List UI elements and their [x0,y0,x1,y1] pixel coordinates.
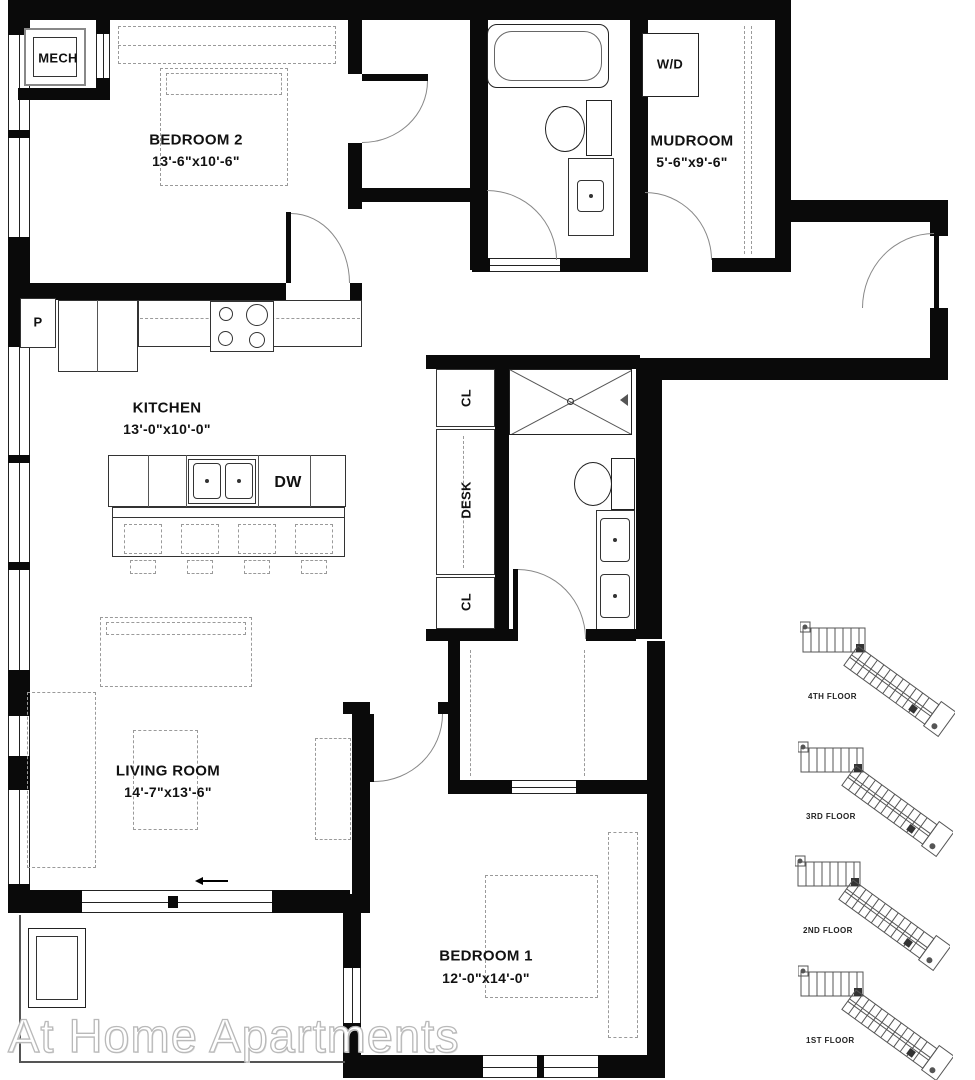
pantry-label: P [34,315,43,330]
kitchen-dims: 13'-0"x10'-0" [123,421,211,437]
stool-dashed [181,524,219,554]
floor-key-2: 2ND FLOOR [795,854,955,976]
bathtub-inner [494,31,602,81]
door-swing [291,213,350,283]
door-swing [645,192,712,260]
wall [788,200,948,222]
refrigerator [58,300,138,372]
wall [472,258,490,272]
dresser-dashed [608,832,638,1038]
sink [600,574,630,618]
mudroom-closet-dashed [744,26,745,254]
wall [658,358,948,380]
entry-arrow-line [202,880,228,882]
island-seating-edge [112,517,345,518]
closet-slider [512,780,576,794]
watermark: At Home Apartments [8,1008,460,1063]
coffee-table-dashed [133,730,198,830]
toilet [545,106,585,152]
sliding-door-stile [168,896,178,908]
refrigerator-divider [97,300,98,372]
entry-arrow-icon [195,877,203,885]
floor-key-3: 3RD FLOOR [798,740,958,862]
floor-key-4: 4TH FLOOR [800,620,960,742]
floor-key-label: 4TH FLOOR [808,692,857,701]
shower [509,369,632,435]
wall [426,355,640,369]
mech-label: MECH [38,51,77,66]
island-divider [148,455,149,507]
door-swing [362,81,428,143]
stool-dashed [238,524,276,554]
island-divider [186,455,187,507]
window [8,347,30,670]
desk-label: DESK [459,481,474,518]
shower-head-icon [620,394,628,406]
floor-key-shape [800,620,960,745]
closet-rod-dashed [470,650,471,776]
wall [18,0,790,20]
wall [647,641,665,1078]
window-mullion [537,1055,544,1078]
sink [600,518,630,562]
wall [775,0,791,272]
wall [352,714,370,894]
wall [438,702,460,714]
closet-rod-dashed [118,45,336,46]
burner [219,307,233,321]
stool-dashed [130,560,156,574]
living-room-label: LIVING ROOM [116,763,220,780]
floor-key-label: 2ND FLOOR [803,926,853,935]
toilet-tank [586,100,612,156]
window-mullion [8,130,30,138]
door-swing [374,714,443,782]
pocket-door [490,258,560,272]
chair-dashed [27,692,96,868]
sofa-back-dashed [106,622,246,635]
floor-key-shape [798,740,958,865]
dishwasher-label: DW [274,474,301,492]
washer-dryer-label: W/D [657,57,683,72]
floor-plan: MECH BEDROOM 2 13'-6"x10'-6" W/D MUDROOM… [0,0,975,1080]
pillow-dashed [166,73,282,95]
mudroom-closet-dashed [751,26,752,254]
sink [225,463,253,499]
bedroom2-label: BEDROOM 2 [149,132,243,149]
burner [246,304,268,326]
wall [560,258,632,272]
door-swing [518,569,586,639]
bedroom1-label: BEDROOM 1 [439,948,533,965]
island-divider [310,455,311,507]
bedroom2-dims: 13'-6"x10'-6" [152,153,240,169]
bedroom1-dims: 12'-0"x14'-0" [442,970,530,986]
mudroom-label: MUDROOM [651,133,734,150]
burner [249,332,265,348]
console-dashed [315,738,351,840]
burner [218,331,233,346]
wall [448,780,512,794]
wall [930,308,948,358]
closet-upper-label: CL [459,389,474,407]
stool-dashed [301,560,327,574]
floor-key-1: 1ST FLOOR [798,964,958,1080]
wall [18,88,110,100]
stool-dashed [124,524,162,554]
wall [586,629,636,641]
wall [712,258,791,272]
door-leaf [362,74,428,81]
window-mullion [8,562,30,570]
stool-dashed [295,524,333,554]
sink [193,463,221,499]
wall [343,913,361,968]
wall [636,358,662,639]
mech-door [96,34,110,78]
floor-key-label: 1ST FLOOR [806,1036,855,1045]
window-mullion [8,455,30,463]
wall [272,890,350,913]
shower-drain [567,398,574,405]
wall [495,369,509,629]
closet-lower-label: CL [459,593,474,611]
wall [8,890,82,913]
sink [577,180,604,212]
floor-key-shape [798,964,958,1080]
toilet-tank [611,458,635,510]
wall [18,283,286,300]
entry-door-swing [862,233,934,308]
wall [350,283,362,300]
floor-key-shape [795,854,955,979]
toilet [574,462,612,506]
wall [426,629,509,641]
floor-key-label: 3RD FLOOR [806,812,856,821]
wall [343,702,370,714]
door-swing [487,190,557,260]
wall [356,188,478,202]
patio-planter-inner [36,936,78,1000]
island-divider [258,455,259,507]
closet-rod-dashed [584,650,585,776]
stool-dashed [187,560,213,574]
kitchen-label: KITCHEN [133,400,202,417]
wall [348,20,362,74]
living-room-dims: 14'-7"x13'-6" [124,784,212,800]
mudroom-dims: 5'-6"x9'-6" [656,154,728,170]
entry-door-leaf [934,233,939,308]
stool-dashed [244,560,270,574]
